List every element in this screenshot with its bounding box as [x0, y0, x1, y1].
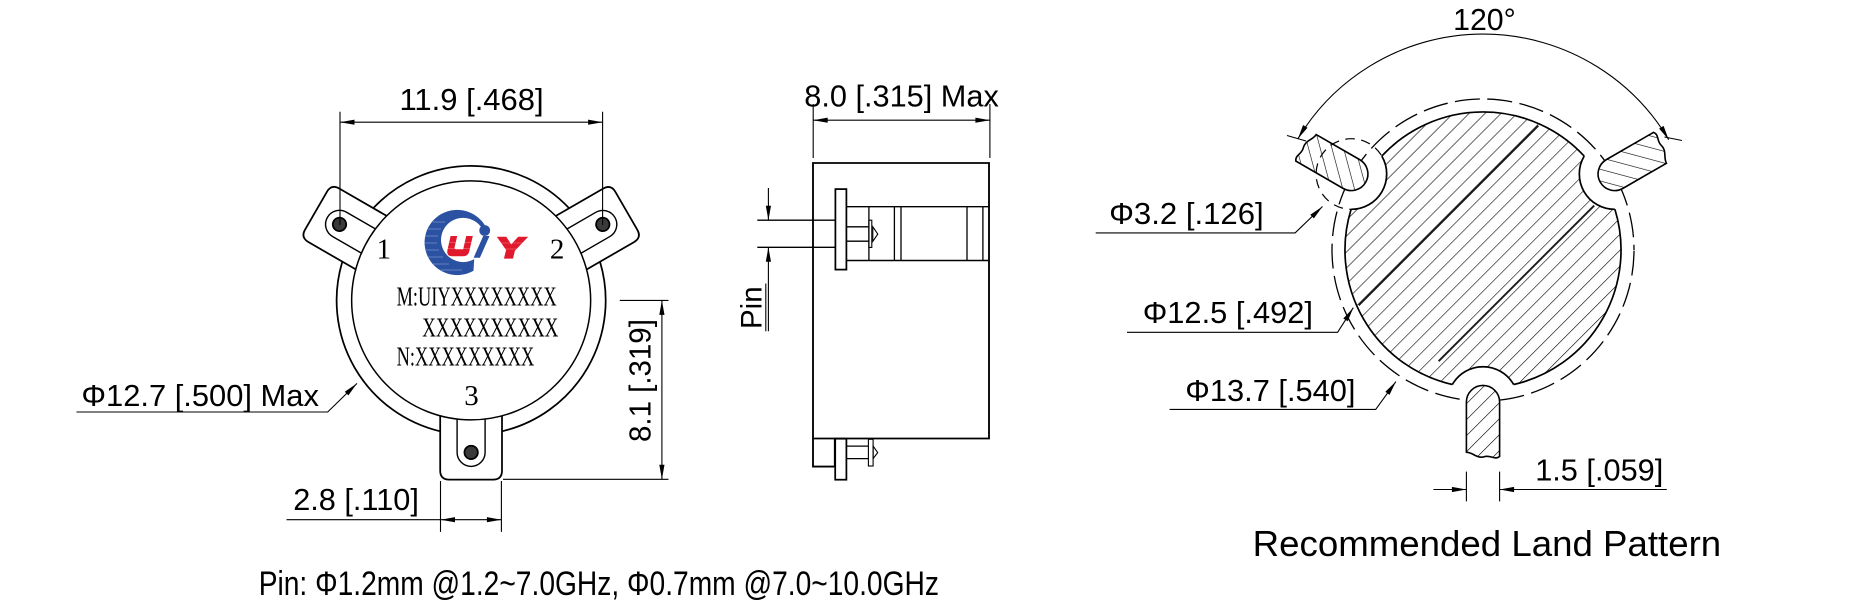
svg-text:1.5 [.059]: 1.5 [.059] [1535, 452, 1663, 487]
svg-text:2.8 [.110]: 2.8 [.110] [293, 482, 419, 517]
svg-text:Φ12.5 [.492]: Φ12.5 [.492] [1143, 295, 1313, 330]
svg-text:N:XXXXXXXXX: N:XXXXXXXXX [397, 340, 535, 371]
svg-text:Recommended Land Pattern: Recommended Land Pattern [1253, 523, 1722, 564]
svg-text:M:UIYXXXXXXXX: M:UIYXXXXXXXX [397, 281, 557, 312]
svg-text:Pin: Pin [736, 286, 769, 329]
svg-text:120°: 120° [1453, 2, 1516, 37]
svg-text:Φ12.7 [.500] Max: Φ12.7 [.500] Max [81, 378, 319, 413]
svg-text:3: 3 [464, 380, 479, 412]
svg-text:8.0 [.315] Max: 8.0 [.315] Max [804, 79, 999, 114]
svg-text:Pin: Φ1.2mm @1.2~7.0GHz, Φ0.7m: Pin: Φ1.2mm @1.2~7.0GHz, Φ0.7mm @7.0~10.… [259, 565, 939, 603]
svg-text:Φ3.2 [.126]: Φ3.2 [.126] [1109, 196, 1264, 231]
svg-text:8.1 [.319]: 8.1 [.319] [623, 319, 658, 442]
svg-text:1: 1 [377, 233, 392, 265]
svg-text:11.9 [.468]: 11.9 [.468] [400, 82, 544, 117]
svg-text:2: 2 [550, 233, 565, 265]
svg-text:Φ13.7 [.540]: Φ13.7 [.540] [1185, 373, 1355, 408]
svg-text:XXXXXXXXXX: XXXXXXXXXX [422, 311, 558, 342]
